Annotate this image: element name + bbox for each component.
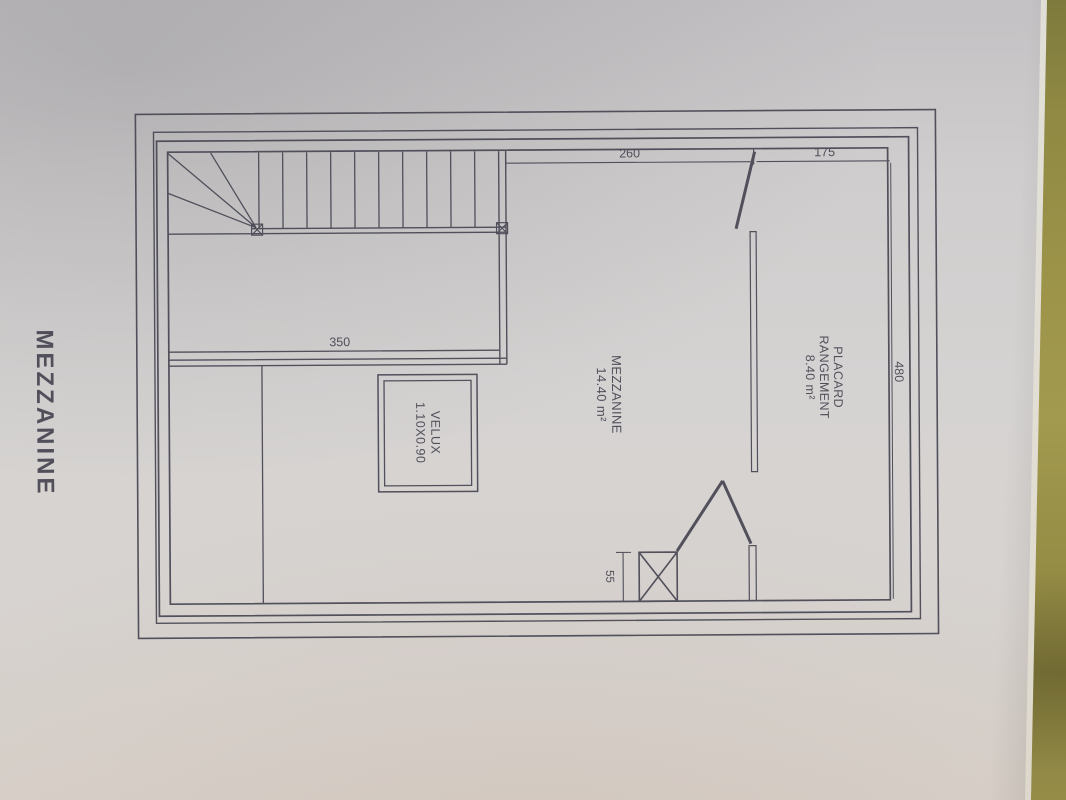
wall-inner [168, 148, 891, 604]
room-label-mezzanine: MEZZANINE [609, 355, 624, 434]
dim-480-label: 480 [892, 361, 906, 382]
floor-plan-svg: 350 VELUX 1.10X0.90 260 175 480 [0, 0, 1066, 800]
stairwell-right-edge [499, 151, 507, 364]
door-stub-wall [749, 546, 756, 601]
photo-canvas: 350 VELUX 1.10X0.90 260 175 480 [0, 0, 1066, 800]
page-title-mezzanine: MEZZANINE [31, 329, 59, 496]
drawing-tilt-group: 350 VELUX 1.10X0.90 260 175 480 [29, 110, 938, 640]
partition-wall [750, 232, 757, 472]
dim-260-label: 260 [619, 146, 640, 160]
stair-treads [259, 151, 475, 228]
dim-55-line [616, 552, 631, 601]
handrail [168, 227, 506, 234]
placard-label-line2: RANGEMENT [817, 335, 832, 419]
room-area-mezzanine: 14.40 m² [594, 367, 609, 422]
wall-outer [157, 137, 912, 617]
dim-175-label: 175 [814, 145, 835, 159]
low-wall-divider [262, 366, 263, 604]
folding-door-leaf-left [677, 481, 723, 551]
velux-label: VELUX [428, 411, 442, 455]
folding-door-leaf-right [723, 481, 751, 544]
door-top-leaf [736, 152, 755, 229]
duct-crossbox [639, 552, 677, 601]
mezzanine-floor-edge [169, 358, 507, 366]
placard-label-line1: PLACARD [831, 346, 845, 408]
placard-area: 8.40 m² [803, 355, 817, 400]
stairwell-opening-line [169, 350, 500, 352]
dim-55-label: 55 [603, 570, 615, 583]
dim-350-label: 350 [329, 335, 350, 349]
winder-steps [168, 153, 256, 229]
velux-size-label: 1.10X0.90 [413, 402, 427, 464]
